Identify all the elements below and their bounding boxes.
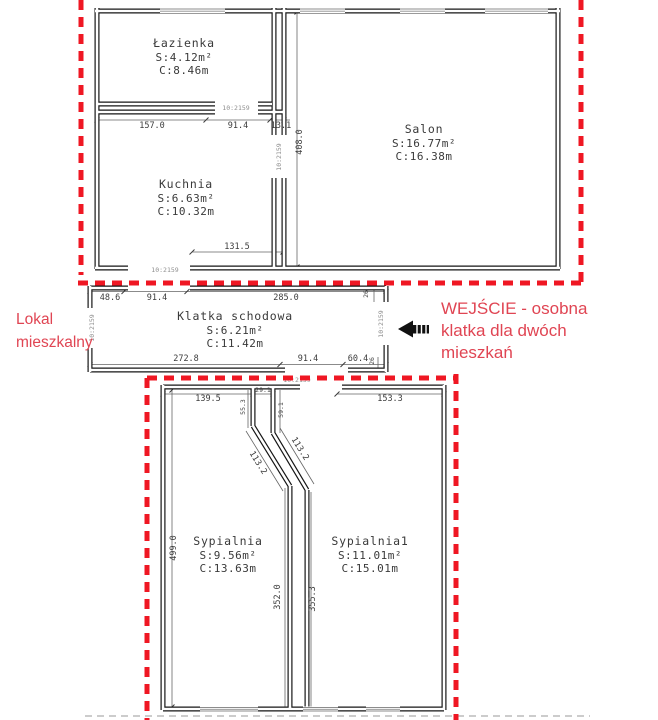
dim-bed-top-2: 55.3: [239, 399, 247, 415]
dim-bed-vert-1: 499.0: [169, 535, 179, 561]
room-kuchnia-circumference: C:10.32m: [158, 205, 215, 218]
note-entrance-line1: WEJŚCIE - osobna: [441, 299, 588, 318]
room-labels: Łazienka S:4.12m² C:8.46m Kuchnia S:6.63…: [152, 36, 456, 575]
note-unit-line2: mieszkalny: [16, 334, 93, 351]
dim-bed-vert-3: 355.3: [308, 586, 318, 612]
door-label-stair-entrance: 10:2159: [377, 310, 385, 337]
dim-stair-bot-4: 26: [368, 357, 376, 365]
note-unit-line1: Lokal: [16, 311, 53, 328]
room-sypialnia-circumference: C:13.63m: [200, 562, 257, 575]
floor-plan-page: Łazienka S:4.12m² C:8.46m Kuchnia S:6.63…: [0, 0, 658, 720]
dim-bed-diag-2: 113.2: [289, 435, 311, 462]
dim-bed-top-1: 139.5: [195, 394, 221, 404]
dim-stair-top-2: 91.4: [147, 293, 167, 303]
room-lazienka-area: S:4.12m²: [156, 51, 213, 64]
room-sypialnia1-name: Sypialnia1: [331, 534, 408, 548]
dim-bath-bottom-2: 91.4: [228, 121, 248, 131]
floor-plan-canvas: Łazienka S:4.12m² C:8.46m Kuchnia S:6.63…: [0, 0, 658, 720]
room-salon-area: S:16.77m²: [392, 137, 456, 150]
entrance-arrow-icon: [398, 321, 429, 338]
door-label-kuchnia-salon: 10:2159: [275, 143, 283, 170]
door-label-lazienka: 10:2159: [222, 104, 249, 112]
note-entrance-line3: mieszkań: [441, 343, 513, 362]
room-klatka-circumference: C:11.42m: [207, 337, 264, 350]
dim-salon-height: 408.0: [295, 129, 305, 155]
dim-bed-top-3: 29.1: [255, 386, 271, 394]
room-lazienka-circumference: C:8.46m: [159, 64, 209, 77]
room-kuchnia-area: S:6.63m²: [158, 192, 215, 205]
room-sypialnia-name: Sypialnia: [193, 534, 263, 548]
dim-stair-top-4: 26: [362, 290, 370, 298]
room-klatka-area: S:6.21m²: [207, 324, 264, 337]
dim-bed-top-4: 59.1: [277, 402, 285, 418]
dim-bed-top-5: 153.3: [377, 394, 403, 404]
dim-stair-bot-1: 272.8: [173, 354, 199, 364]
dim-bed-vert-2: 352.0: [273, 584, 283, 610]
note-entrance-line2: klatka dla dwóch: [441, 321, 567, 340]
annotations: Lokal mieszkalny WEJŚCIE - osobna klatka…: [16, 299, 588, 362]
dim-stair-bot-2: 91.4: [298, 354, 318, 364]
door-label-unit-entry: 10:2159: [151, 266, 178, 274]
dim-bath-bottom-1: 157.0: [139, 121, 165, 131]
dim-kitchen-bottom: 131.5: [224, 242, 250, 252]
room-sypialnia-area: S:9.56m²: [200, 549, 257, 562]
dim-stair-top-3: 285.0: [273, 293, 299, 303]
room-lazienka-name: Łazienka: [152, 36, 215, 50]
dim-bath-bottom-3: 13.1: [271, 121, 291, 131]
room-salon-circumference: C:16.38m: [396, 150, 453, 163]
room-kuchnia-name: Kuchnia: [159, 177, 213, 191]
room-salon-name: Salon: [405, 122, 444, 136]
room-klatka-name: Klatka schodowa: [177, 309, 293, 323]
room-sypialnia1-circumference: C:15.01m: [342, 562, 399, 575]
dim-stair-bot-3: 60.4: [348, 354, 368, 364]
room-sypialnia1-area: S:11.01m²: [338, 549, 402, 562]
dim-stair-top-1: 48.6: [100, 293, 120, 303]
